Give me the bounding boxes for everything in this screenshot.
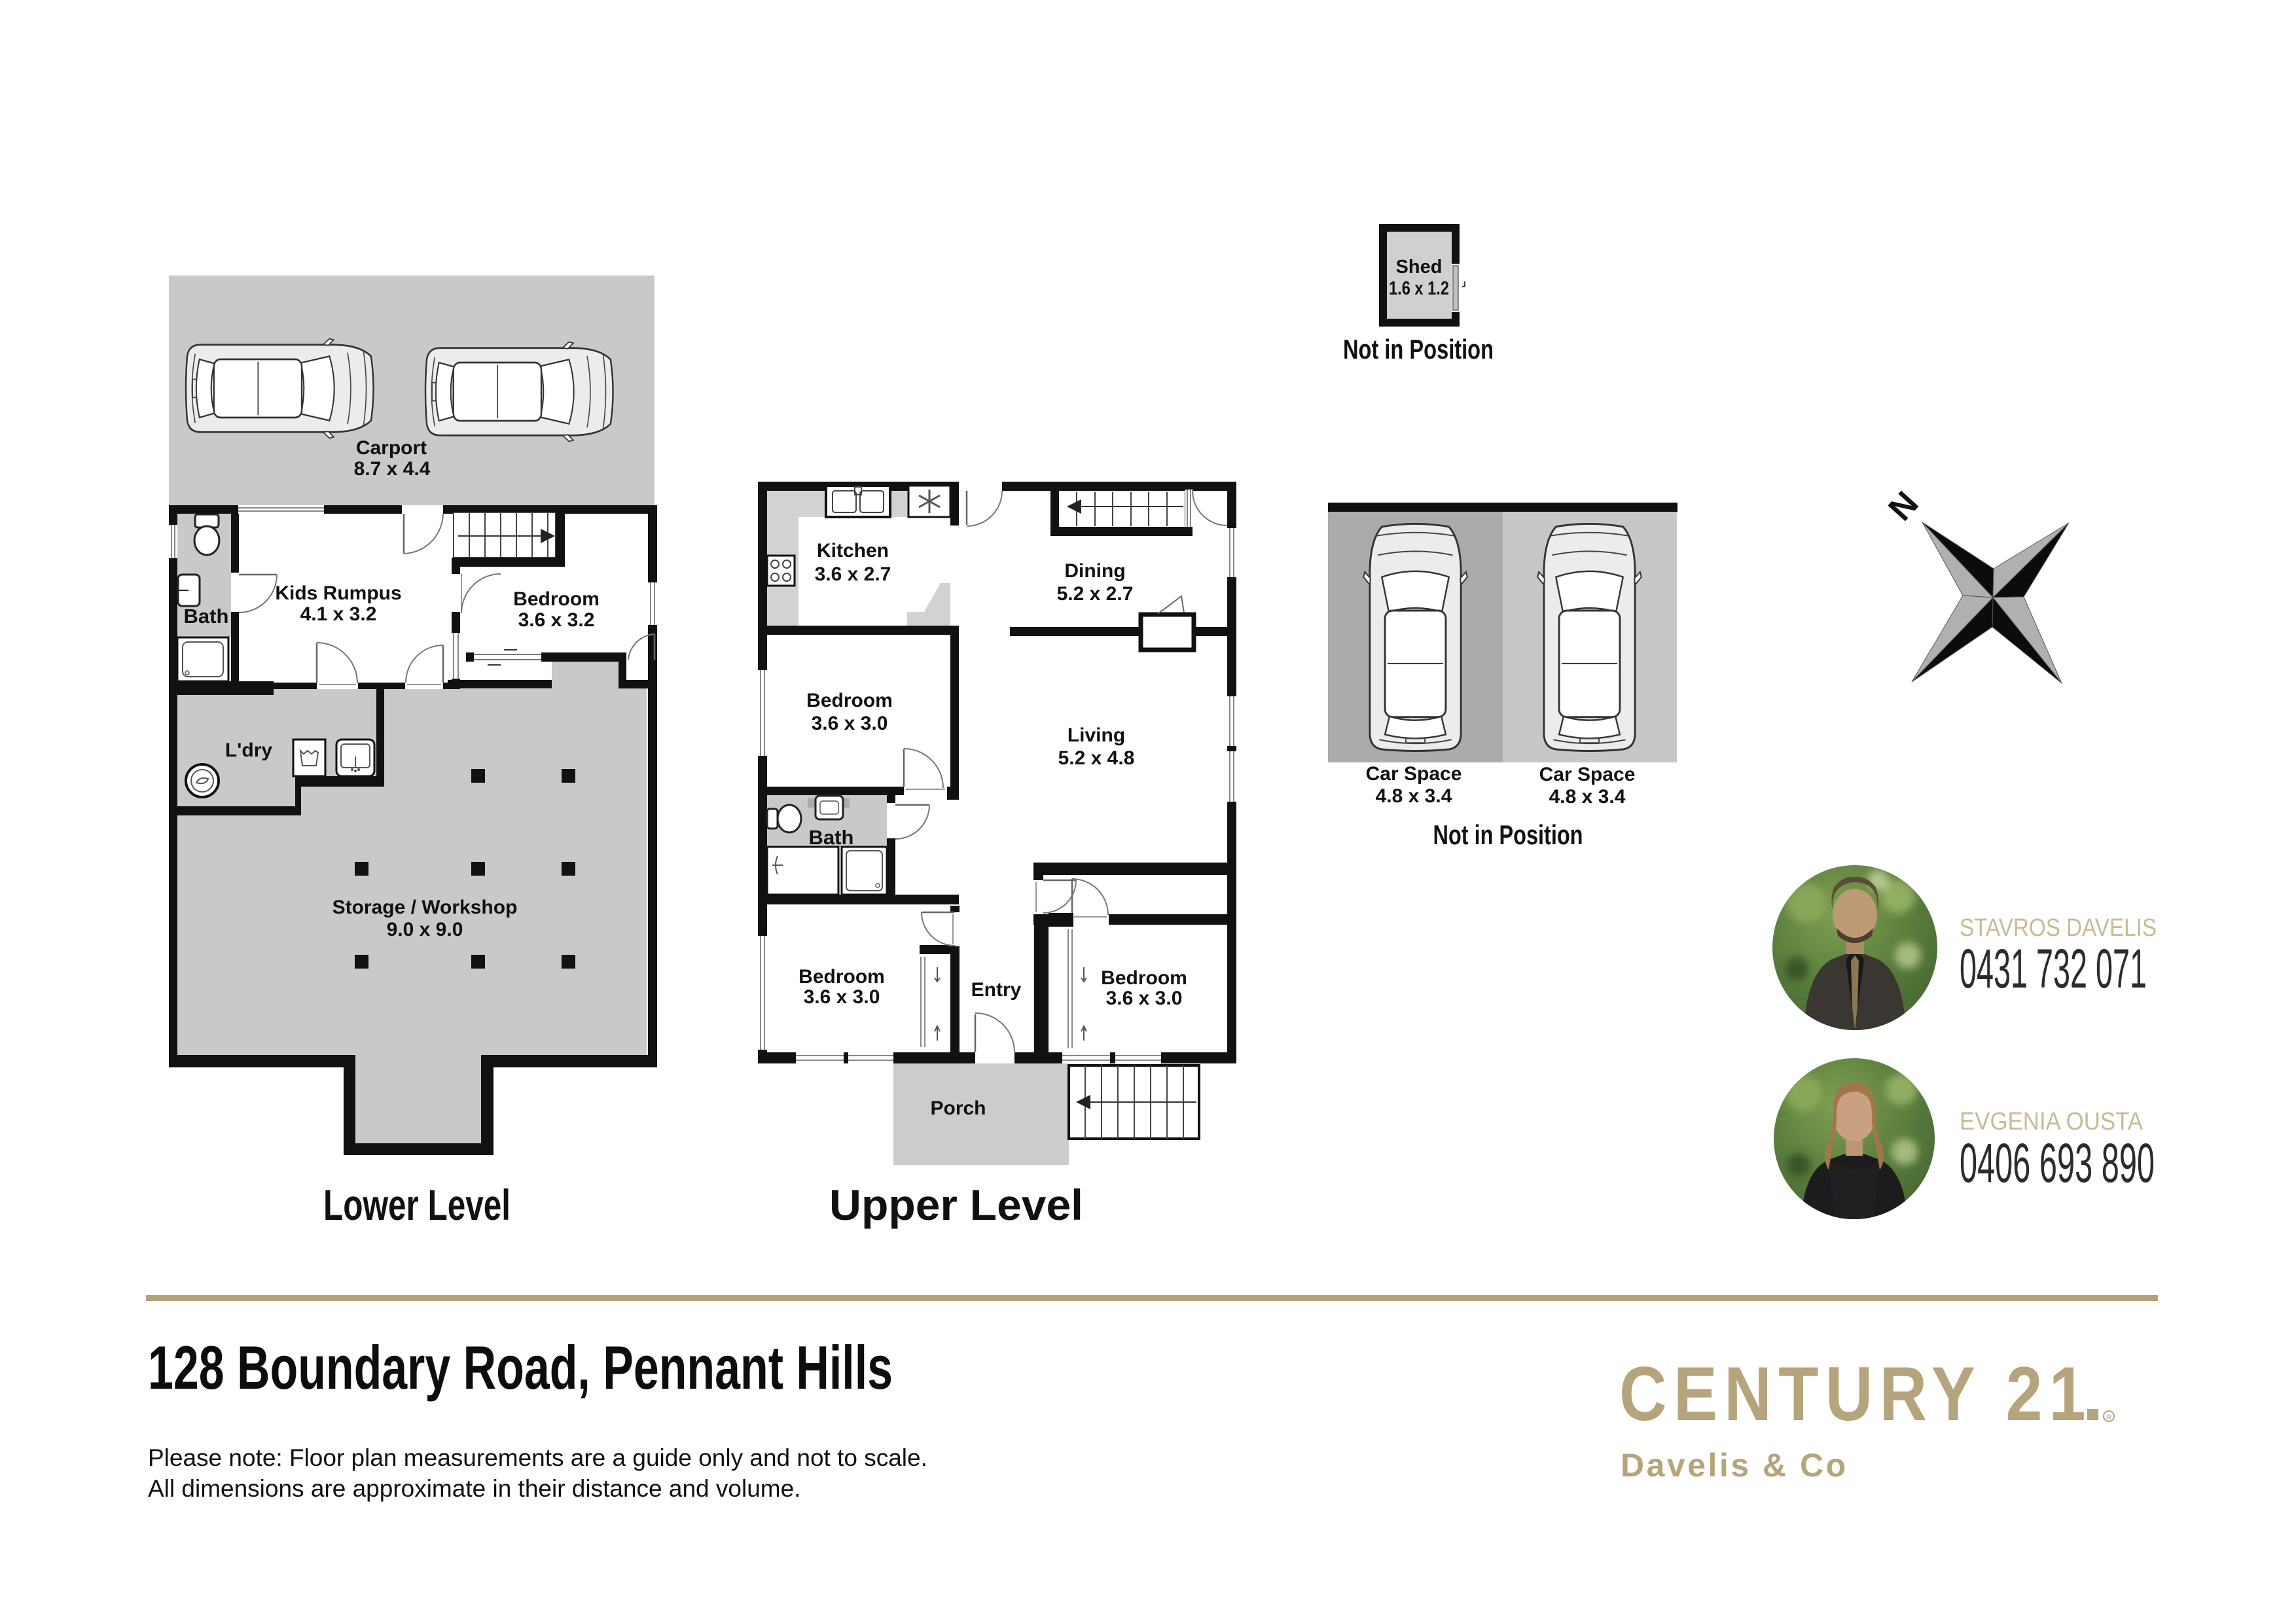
svg-text:Davelis & Co: Davelis & Co — [1621, 1447, 1848, 1484]
svg-text:0431 732 071: 0431 732 071 — [1960, 938, 2147, 999]
svg-text:Bath: Bath — [184, 605, 229, 628]
svg-text:5.2 x 4.8: 5.2 x 4.8 — [1058, 747, 1135, 769]
svg-text:All dimensions are approximate: All dimensions are approximate in their … — [148, 1475, 800, 1502]
svg-text:Bath: Bath — [809, 826, 854, 849]
svg-text:EVGENIA OUSTA: EVGENIA OUSTA — [1960, 1108, 2144, 1135]
svg-text:128 Boundary Road, Pennant Hil: 128 Boundary Road, Pennant Hills — [148, 1333, 893, 1402]
svg-text:Bedroom: Bedroom — [798, 966, 885, 988]
svg-text:Upper Level: Upper Level — [829, 1181, 1083, 1229]
svg-text:3.6 x 3.0: 3.6 x 3.0 — [1106, 988, 1183, 1009]
svg-text:Bedroom: Bedroom — [513, 588, 600, 610]
svg-text:9.0 x 9.0: 9.0 x 9.0 — [387, 919, 463, 940]
svg-text:4.1 x 3.2: 4.1 x 3.2 — [300, 603, 377, 625]
svg-text:Shed: Shed — [1396, 257, 1443, 277]
svg-text:R: R — [2106, 1414, 2111, 1421]
svg-text:Storage / Workshop: Storage / Workshop — [332, 897, 518, 918]
svg-text:3.6 x 3.0: 3.6 x 3.0 — [812, 713, 888, 734]
svg-text:Carport: Carport — [356, 437, 427, 459]
svg-text:Kitchen: Kitchen — [817, 540, 889, 562]
svg-text:4.8 x 3.4: 4.8 x 3.4 — [1376, 785, 1452, 807]
svg-text:1.6 x 1.2: 1.6 x 1.2 — [1389, 278, 1449, 299]
svg-text:8.7 x 4.4: 8.7 x 4.4 — [354, 458, 431, 480]
svg-text:Lower Level: Lower Level — [323, 1181, 511, 1229]
svg-text:3.6 x 3.0: 3.6 x 3.0 — [804, 986, 880, 1008]
svg-text:3.6 x 3.2: 3.6 x 3.2 — [518, 609, 595, 631]
svg-text:Living: Living — [1067, 724, 1125, 746]
svg-text:4.8 x 3.4: 4.8 x 3.4 — [1549, 786, 1626, 808]
svg-text:0406 693 890: 0406 693 890 — [1960, 1132, 2155, 1194]
svg-text:Entry: Entry — [971, 979, 1022, 1001]
svg-text:Kids Rumpus: Kids Rumpus — [275, 582, 401, 604]
svg-text:Car Space: Car Space — [1366, 763, 1462, 785]
svg-text:5.2 x 2.7: 5.2 x 2.7 — [1057, 583, 1134, 605]
svg-text:3.6 x 2.7: 3.6 x 2.7 — [815, 563, 891, 585]
svg-text:Bedroom: Bedroom — [806, 690, 893, 711]
svg-text:Not in Position: Not in Position — [1343, 334, 1494, 365]
svg-text:Bedroom: Bedroom — [1101, 967, 1187, 989]
svg-text:Car Space: Car Space — [1539, 764, 1636, 785]
svg-text:Porch: Porch — [930, 1097, 986, 1119]
svg-text:Please note: Floor plan measur: Please note: Floor plan measurements are… — [148, 1444, 927, 1471]
svg-text:N: N — [1881, 484, 1926, 528]
svg-text:Dining: Dining — [1064, 560, 1125, 582]
svg-text:L'dry: L'dry — [225, 740, 272, 761]
svg-text:Not in Position: Not in Position — [1433, 819, 1583, 850]
svg-text:CENTURY 21: CENTURY 21 — [1619, 1351, 2092, 1436]
